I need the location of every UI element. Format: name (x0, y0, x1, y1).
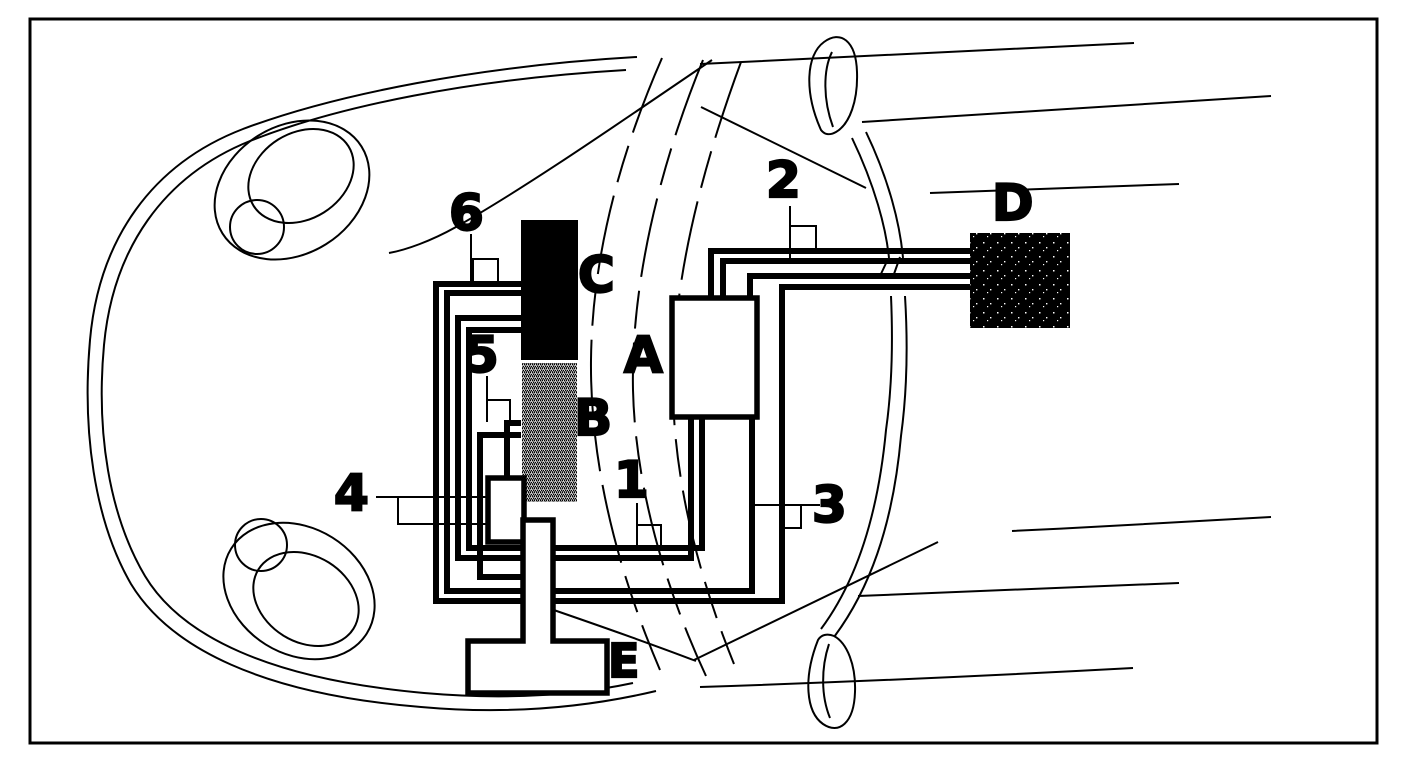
roof-arc (821, 132, 907, 641)
marker-label-2: 2 (766, 155, 801, 205)
component-label-e: E (608, 638, 639, 684)
component-b-box (522, 363, 577, 502)
marker-label-3: 3 (812, 480, 847, 530)
car-wiring-diagram (0, 0, 1408, 774)
junction-connector-box (488, 478, 524, 542)
component-c-box (521, 220, 578, 360)
headlight-upper-left (189, 92, 396, 287)
wire-a-to-d-2 (723, 261, 970, 300)
marker-label-1: 1 (614, 455, 649, 505)
component-a-box (672, 298, 757, 417)
diagram-canvas: C B A D E 1 2 3 4 5 6 (0, 0, 1408, 774)
marker-label-4: 4 (334, 468, 369, 518)
component-label-a: A (624, 330, 663, 380)
marker-3-pointer (753, 505, 820, 528)
component-d-box (970, 233, 1070, 328)
wire-b-to-junction (507, 423, 521, 478)
component-label-b: B (574, 393, 612, 443)
marker-label-6: 6 (449, 188, 484, 238)
component-label-c: C (578, 250, 615, 300)
headlight-lower-left (198, 495, 400, 687)
component-label-d: D (992, 178, 1034, 228)
side-mirror-top (809, 37, 857, 134)
body-lines-right (700, 43, 1271, 687)
marker-label-5: 5 (464, 330, 499, 380)
